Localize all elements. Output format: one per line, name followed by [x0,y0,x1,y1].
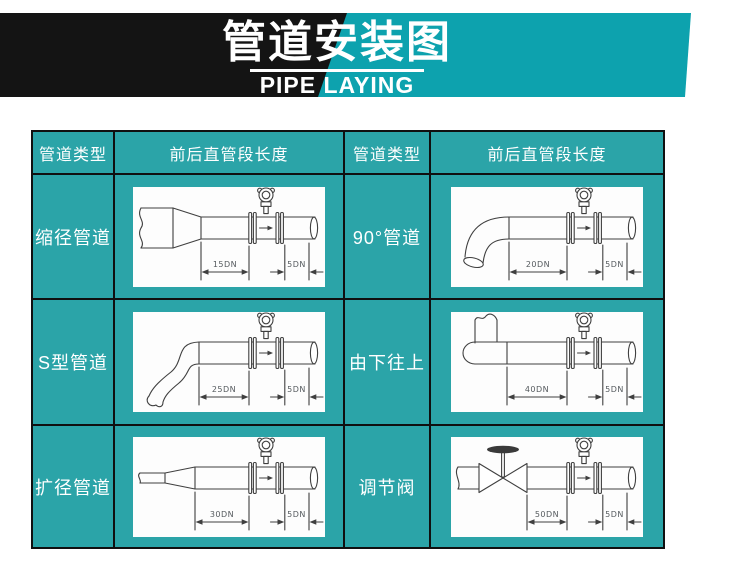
bottom-to-top-pipe-diagram: 40DN 5DN [451,312,643,412]
header-straight-length-left: 前后直管段长度 [115,132,343,173]
type-cell-s-shaped-pipe: S型管道 [33,300,113,424]
diagram-cell-expanding-pipe: 30DN 5DN [115,426,343,547]
diagram-box: 20DN 5DN [451,187,643,287]
flowmeter-icon [567,313,602,369]
diagram-cell-reducing-pipe: 15DN 5DN [115,175,343,298]
reducing-pipe-diagram: 15DN 5DN [133,187,325,287]
header-pipe-type-left: 管道类型 [33,132,113,173]
elbow-90-pipe-diagram: 20DN 5DN [451,187,643,287]
upstream-dimension-label: 25DN [212,385,236,394]
upstream-dimension-label: 15DN [213,260,237,269]
control-valve-pipe-diagram: 50DN 5DN [451,437,643,537]
page-subtitle: PIPE LAYING [222,74,452,96]
downstream-dimension-label: 5DN [287,385,306,394]
flowmeter-icon [567,188,602,244]
diagram-cell-bottom-to-top: 40DN 5DN [431,300,663,424]
type-cell-elbow-90: 90°管道 [345,175,429,298]
diagram-box: 25DN 5DN [133,312,325,412]
header-straight-length-right: 前后直管段长度 [431,132,663,173]
s-shaped-pipe-diagram: 25DN 5DN [133,312,325,412]
upstream-dimension-label: 20DN [526,260,550,269]
diagram-box: 15DN 5DN [133,187,325,287]
banner-text-block: 管道安装图 PIPE LAYING [222,18,452,96]
banner: 管道安装图 PIPE LAYING [0,13,691,97]
page-title: 管道安装图 [222,18,452,68]
flowmeter-icon [567,438,602,494]
flowmeter-icon [249,188,284,244]
type-cell-bottom-to-top: 由下往上 [345,300,429,424]
downstream-dimension-label: 5DN [605,260,624,269]
diagram-box: 50DN 5DN [451,437,643,537]
downstream-dimension-label: 5DN [605,510,624,519]
downstream-dimension-label: 5DN [287,510,306,519]
header-pipe-type-right: 管道类型 [345,132,429,173]
flowmeter-icon [249,313,284,369]
diagram-box: 30DN 5DN [133,437,325,537]
pipe-laying-table: 管道类型 前后直管段长度 管道类型 前后直管段长度 缩径管道 [31,130,665,549]
downstream-dimension-label: 5DN [605,385,624,394]
type-cell-control-valve: 调节阀 [345,426,429,547]
diagram-cell-s-shaped-pipe: 25DN 5DN [115,300,343,424]
expanding-pipe-diagram: 30DN 5DN [133,437,325,537]
upstream-dimension-label: 30DN [210,510,234,519]
upstream-dimension-label: 50DN [535,510,559,519]
type-cell-reducing-pipe: 缩径管道 [33,175,113,298]
type-cell-expanding-pipe: 扩径管道 [33,426,113,547]
diagram-cell-control-valve: 50DN 5DN [431,426,663,547]
flowmeter-icon [249,438,284,494]
upstream-dimension-label: 40DN [525,385,549,394]
diagram-cell-elbow-90: 20DN 5DN [431,175,663,298]
downstream-dimension-label: 5DN [287,260,306,269]
diagram-box: 40DN 5DN [451,312,643,412]
